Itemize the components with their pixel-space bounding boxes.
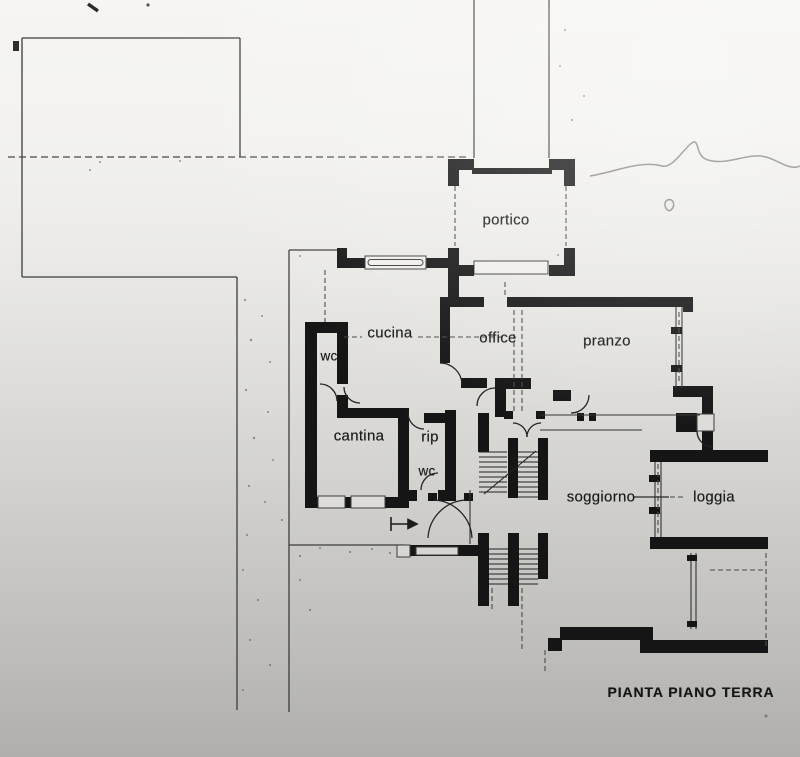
- driveway-lines: [474, 0, 549, 158]
- room-label-wc-upper: wc: [320, 349, 337, 364]
- room-label-cucina: cucina: [367, 325, 412, 342]
- floor-plan-sheet: portico cucina office pranzo wc cantina …: [0, 0, 800, 757]
- portico-step: [474, 261, 548, 274]
- room-label-pranzo: pranzo: [583, 333, 631, 350]
- entry-arrow: [391, 517, 417, 531]
- room-label-wc-lower: wc: [418, 464, 435, 479]
- room-label-rip: rip: [421, 429, 439, 446]
- contour-line: [590, 142, 800, 211]
- room-label-cantina: cantina: [334, 428, 384, 445]
- window-tick-blocks: [649, 327, 697, 627]
- stipple-dots: [89, 29, 768, 718]
- scan-marks: [13, 3, 150, 51]
- room-label-loggia: loggia: [693, 489, 735, 506]
- drawing-title: PIANTA PIANO TERRA: [607, 684, 774, 700]
- room-label-office: office: [479, 330, 516, 347]
- room-label-portico: portico: [482, 212, 529, 229]
- room-label-soggiorno: soggiorno: [567, 489, 636, 506]
- walls: [305, 248, 768, 653]
- thin-walls: [470, 307, 700, 629]
- floor-plan-drawing: [0, 0, 800, 757]
